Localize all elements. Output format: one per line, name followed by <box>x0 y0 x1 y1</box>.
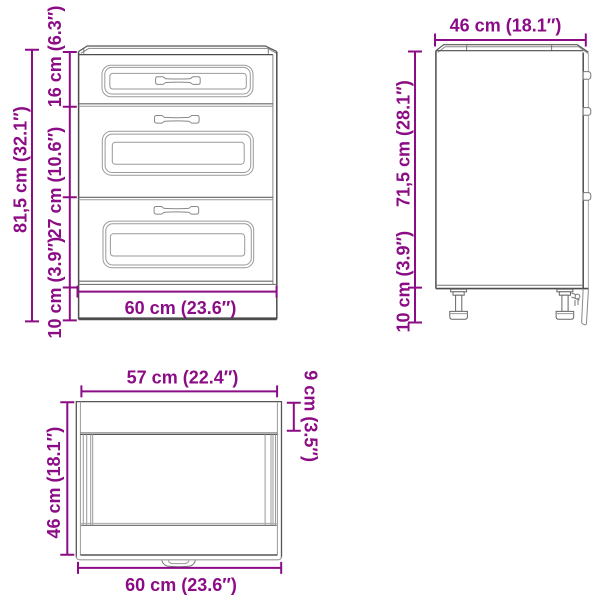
svg-text:60 cm (23.6″): 60 cm (23.6″) <box>125 575 237 595</box>
svg-text:16 cm (6.3″): 16 cm (6.3″) <box>45 6 65 108</box>
svg-text:46 cm (18.1″): 46 cm (18.1″) <box>44 427 64 539</box>
svg-text:27 cm (10.6″): 27 cm (10.6″) <box>45 127 65 239</box>
svg-text:10 cm (3.9″): 10 cm (3.9″) <box>394 231 414 333</box>
svg-text:46 cm (18.1″): 46 cm (18.1″) <box>450 16 562 36</box>
svg-text:10 cm (3.9″): 10 cm (3.9″) <box>45 237 65 339</box>
svg-text:71,5 cm (28.1″): 71,5 cm (28.1″) <box>394 80 414 207</box>
svg-text:81,5 cm (32.1″): 81,5 cm (32.1″) <box>11 106 31 233</box>
svg-text:9 cm (3.5″): 9 cm (3.5″) <box>301 370 321 462</box>
svg-text:60 cm (23.6″): 60 cm (23.6″) <box>125 298 237 318</box>
svg-text:57 cm (22.4″): 57 cm (22.4″) <box>127 368 239 388</box>
